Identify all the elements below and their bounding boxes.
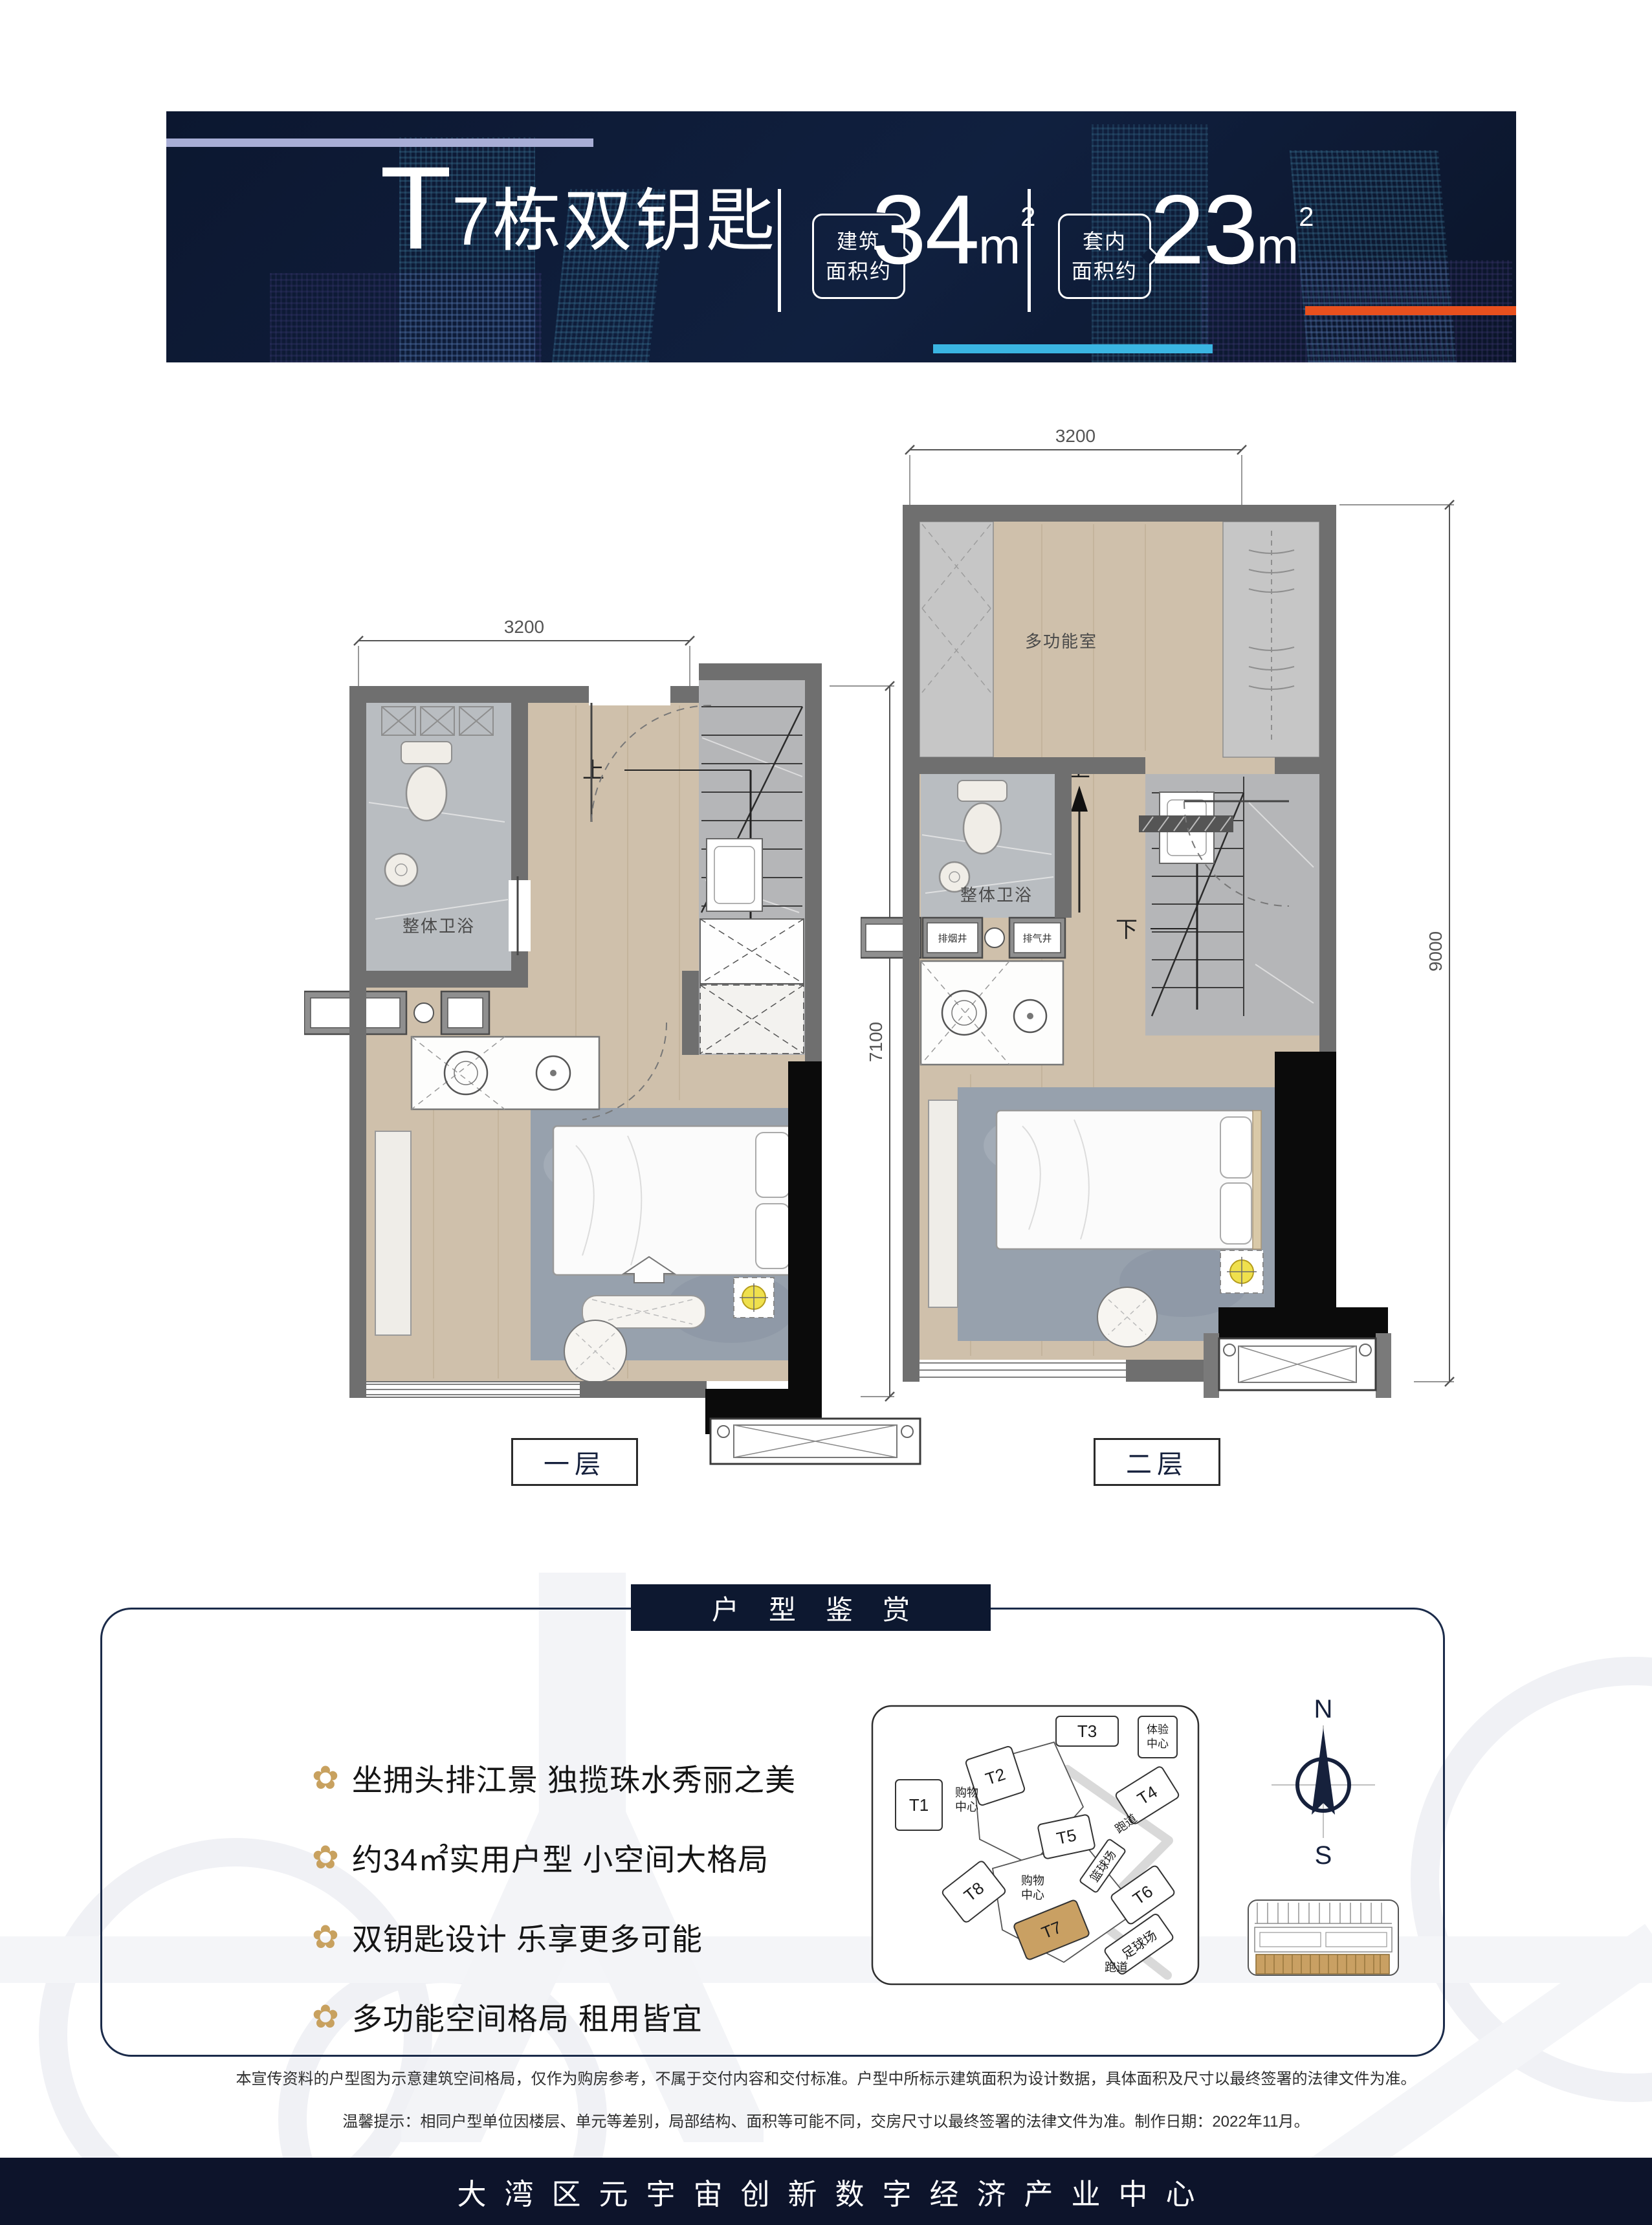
closet-left bbox=[920, 522, 993, 757]
selling-points-list: ✿ 坐拥头排江景 独揽珠水秀丽之美 ✿ 约34㎡实用户型 小空间大格局 ✿ 双钥… bbox=[312, 1755, 796, 2074]
sink bbox=[385, 854, 417, 886]
floor2-tag-label: 二层 bbox=[1126, 1443, 1188, 1481]
pillow bbox=[756, 1133, 789, 1197]
mall-label: 购物 bbox=[1021, 1874, 1044, 1887]
disclaimer-text: 温馨提示：相同户型单位因楼层、单元等差别，局部结构、面积等可能不同，交房尺寸以最… bbox=[342, 2113, 1309, 2131]
floor2-room-label: 多功能室 bbox=[1025, 632, 1097, 651]
wardrobe-strip bbox=[375, 1131, 411, 1335]
flyer-page: T7栋双钥匙 建筑 面积约 34m2 套内 面积约 23m2 bbox=[0, 0, 1652, 2225]
banner: T7栋双钥匙 建筑 面积约 34m2 套内 面积约 23m2 bbox=[166, 111, 1516, 362]
pillow bbox=[1220, 1183, 1251, 1244]
floor2-stairs-down-label: 下 bbox=[1116, 918, 1138, 942]
banner-divider-1 bbox=[778, 189, 781, 312]
banner-title-text: 7栋双钥匙 bbox=[452, 183, 777, 260]
building-t1-label: T1 bbox=[909, 1795, 929, 1815]
floor2-height-dim: 9000 bbox=[1426, 931, 1446, 971]
floor2-bathroom-label: 整体卫浴 bbox=[960, 885, 1033, 905]
clover-icon: ✿ bbox=[312, 1762, 339, 1794]
floor2-plan: 多功能室 整体卫浴 bbox=[861, 414, 1508, 1424]
floor1-plan: 整体卫浴 bbox=[304, 608, 925, 1514]
disclaimer-text: 本宣传资料的户型图为示意建筑空间格局，仅作为购房参考，不属于交付内容和交付标准。… bbox=[236, 2070, 1416, 2088]
floor1-width-dim: 3200 bbox=[504, 617, 544, 637]
air-shaft-label: 排气井 bbox=[1022, 933, 1052, 944]
pillow bbox=[1220, 1117, 1251, 1178]
built-area-number: 34 bbox=[872, 175, 978, 285]
built-area-unit: m bbox=[978, 217, 1020, 274]
compass-north-label: N bbox=[1314, 1695, 1333, 1723]
storage bbox=[700, 985, 804, 1054]
mall-label: 中心 bbox=[1021, 1888, 1044, 1901]
experience-center-label: 体验 bbox=[1147, 1723, 1169, 1736]
kitchen-counter bbox=[412, 1037, 599, 1109]
disclaimer-line-2: 温馨提示：相同户型单位因楼层、单元等差别，局部结构、面积等可能不同，交房尺寸以最… bbox=[0, 2109, 1652, 2131]
smoke-shaft-label: 排烟井 bbox=[938, 933, 967, 944]
bullet-text: 双钥匙设计 乐享更多可能 bbox=[352, 1914, 703, 1959]
site-map: T1 T2 T3 T4 T5 T6 T8 bbox=[870, 1703, 1201, 1987]
banner-title-t: T bbox=[380, 142, 452, 274]
wardrobe-strip bbox=[929, 1100, 958, 1307]
compass-needle-icon bbox=[1312, 1728, 1335, 1815]
list-item: ✿ 双钥匙设计 乐享更多可能 bbox=[312, 1914, 796, 1959]
appreciation-title-text: 户型鉴赏 bbox=[712, 1588, 940, 1628]
toilet-tank bbox=[958, 780, 1007, 801]
track-label: 跑道 bbox=[1105, 1961, 1128, 1974]
mall-label: 中心 bbox=[955, 1800, 978, 1813]
pillow bbox=[756, 1204, 789, 1268]
list-item: ✿ 坐拥头排江景 独揽珠水秀丽之美 bbox=[312, 1755, 796, 1800]
cyan-underline bbox=[933, 344, 1213, 353]
toilet bbox=[406, 766, 446, 821]
clover-icon: ✿ bbox=[312, 1921, 339, 1953]
banner-tower-decoration bbox=[270, 273, 542, 362]
bullet-text: 多功能空间格局 租用皆宜 bbox=[352, 1994, 703, 2039]
inner-area-unit: m bbox=[1257, 217, 1299, 274]
floor2-kitchen: 排烟井 排气井 bbox=[861, 918, 1065, 1065]
building-key-plan bbox=[1246, 1898, 1401, 1978]
banner-divider-2 bbox=[1028, 189, 1031, 312]
floor2-tag: 二层 bbox=[1094, 1438, 1220, 1486]
building-t5-label: T5 bbox=[1055, 1825, 1078, 1848]
footer-bar: 大湾区元宇宙创新数字经济产业中心 bbox=[0, 2158, 1652, 2225]
list-item: ✿ 多功能空间格局 租用皆宜 bbox=[312, 1994, 796, 2039]
built-area-value: 34m2 bbox=[872, 173, 1035, 287]
compass-south-label: S bbox=[1315, 1841, 1332, 1870]
inner-area-label-2: 面积约 bbox=[1072, 256, 1138, 286]
bullet-text: 坐拥头排江景 独揽珠水秀丽之美 bbox=[352, 1755, 796, 1800]
disclaimer-line-1: 本宣传资料的户型图为示意建筑空间格局，仅作为购房参考，不属于交付内容和交付标准。… bbox=[0, 2066, 1652, 2088]
banner-title: T7栋双钥匙 bbox=[380, 149, 777, 267]
experience-center-label: 中心 bbox=[1147, 1738, 1169, 1750]
headboard bbox=[1253, 1111, 1261, 1249]
list-item: ✿ 约34㎡实用户型 小空间大格局 bbox=[312, 1835, 796, 1879]
toilet-tank bbox=[401, 742, 452, 764]
clover-icon: ✿ bbox=[312, 1841, 339, 1874]
experience-center bbox=[1138, 1716, 1177, 1758]
inner-area-sup: 2 bbox=[1299, 201, 1314, 232]
floor1-tag: 一层 bbox=[511, 1438, 638, 1486]
building-t3-label: T3 bbox=[1077, 1721, 1097, 1741]
clover-icon: ✿ bbox=[312, 2000, 339, 2033]
appreciation-title: 户型鉴赏 bbox=[631, 1584, 991, 1631]
inner-area-badge: 套内 面积约 bbox=[1058, 214, 1151, 299]
inner-area-label-1: 套内 bbox=[1083, 227, 1127, 256]
inner-area-value: 23m2 bbox=[1150, 173, 1314, 287]
key-plan-highlight-units bbox=[1256, 1954, 1389, 1974]
inner-area-number: 23 bbox=[1150, 175, 1257, 285]
orange-underline bbox=[1305, 306, 1516, 315]
footer-project-name: 大湾区元宇宙创新数字经济产业中心 bbox=[457, 2171, 1213, 2213]
floor2-width-dim: 3200 bbox=[1055, 426, 1096, 446]
toilet bbox=[964, 803, 1001, 854]
floor1-bathroom-label: 整体卫浴 bbox=[402, 916, 475, 936]
bed bbox=[997, 1111, 1255, 1249]
compass: N S bbox=[1265, 1688, 1382, 1876]
floor1-tag-label: 一层 bbox=[544, 1443, 606, 1481]
mall-label: 购物 bbox=[955, 1786, 978, 1799]
bullet-text: 约34㎡实用户型 小空间大格局 bbox=[352, 1835, 769, 1879]
